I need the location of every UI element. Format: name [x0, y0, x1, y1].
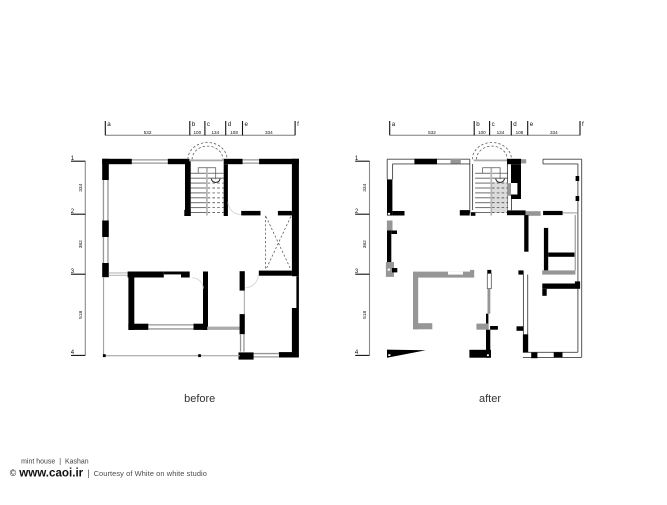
svg-text:108: 108 [230, 130, 238, 135]
svg-text:334: 334 [265, 130, 273, 135]
svg-text:mint house | Kashan: mint house | Kashan [21, 459, 89, 466]
svg-text:108: 108 [516, 130, 524, 135]
svg-text:before: before [184, 393, 215, 405]
svg-text:e: e [530, 121, 534, 128]
svg-text:Courtesy of White on white stu: Courtesy of White on white studio [94, 469, 207, 478]
svg-text:334: 334 [78, 183, 84, 191]
svg-text:382: 382 [78, 240, 84, 248]
svg-text:518: 518 [78, 310, 84, 318]
svg-text:d: d [228, 121, 232, 128]
svg-text:100: 100 [194, 130, 202, 135]
svg-text:532: 532 [144, 130, 152, 135]
svg-text:c: c [492, 121, 495, 128]
svg-text:www.caoi.ir: www.caoi.ir [18, 467, 83, 480]
svg-text:after: after [479, 393, 501, 405]
svg-text:d: d [513, 121, 517, 128]
svg-text:f: f [582, 121, 584, 128]
svg-text:334: 334 [550, 130, 558, 135]
svg-text:b: b [192, 121, 196, 128]
svg-text:a: a [107, 121, 111, 128]
svg-text:b: b [476, 121, 480, 128]
svg-text:382: 382 [362, 240, 368, 248]
svg-text:134: 134 [497, 130, 505, 135]
svg-text:e: e [245, 121, 249, 128]
svg-text:f: f [297, 121, 299, 128]
svg-text:100: 100 [478, 130, 486, 135]
svg-text:©: © [10, 468, 17, 478]
svg-text:518: 518 [362, 310, 368, 318]
svg-text:a: a [392, 121, 396, 128]
svg-text:|: | [87, 468, 89, 478]
svg-text:134: 134 [211, 130, 219, 135]
svg-text:334: 334 [362, 183, 368, 191]
svg-text:c: c [207, 121, 210, 128]
svg-text:532: 532 [428, 130, 436, 135]
